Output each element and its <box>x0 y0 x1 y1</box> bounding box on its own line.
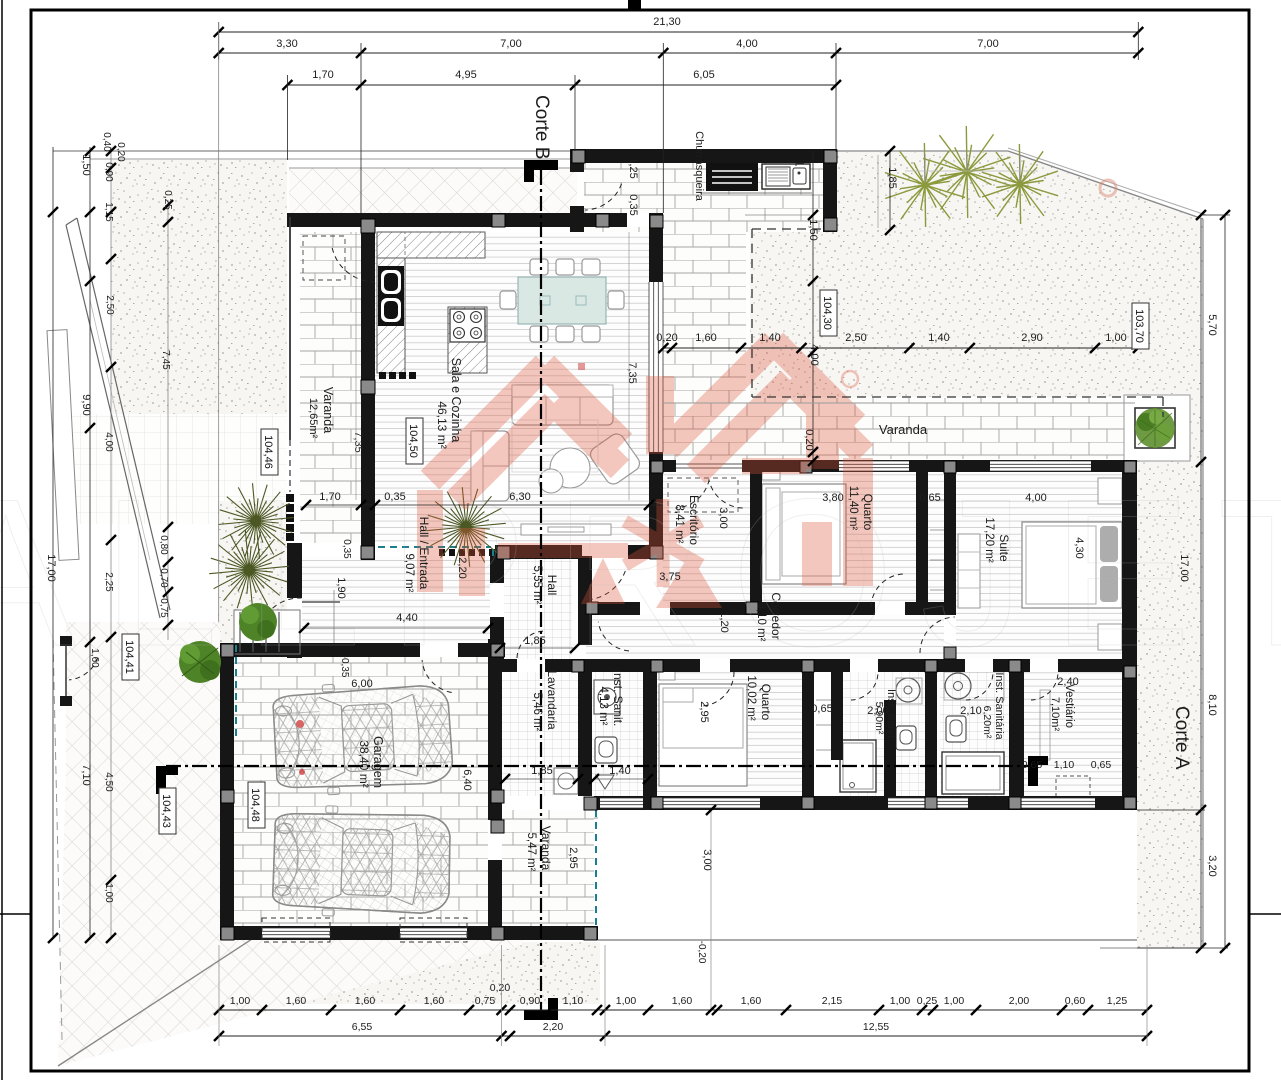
svg-text:1,60: 1,60 <box>89 648 100 668</box>
svg-text:2,00: 2,00 <box>1009 995 1030 1007</box>
svg-text:46,13 m²: 46,13 m² <box>435 401 449 448</box>
svg-text:103,70: 103,70 <box>1133 309 1145 343</box>
svg-text:0,40: 0,40 <box>101 132 112 152</box>
svg-text:1,20: 1,20 <box>718 611 730 632</box>
svg-text:1,70: 1,70 <box>319 491 340 503</box>
svg-text:8,10: 8,10 <box>1206 694 1218 715</box>
svg-text:3,00: 3,00 <box>701 849 713 870</box>
svg-text:0,25: 0,25 <box>162 190 173 210</box>
svg-text:4,95: 4,95 <box>455 69 476 81</box>
svg-text:3,80: 3,80 <box>822 492 843 504</box>
svg-text:7,10m²: 7,10m² <box>1049 697 1061 732</box>
svg-text:Sala e Cozinha: Sala e Cozinha <box>449 358 463 443</box>
svg-text:0,20: 0,20 <box>115 142 126 162</box>
svg-text:2,90: 2,90 <box>1021 332 1042 344</box>
svg-text:6,40: 6,40 <box>461 769 473 790</box>
svg-text:104,50: 104,50 <box>407 424 419 458</box>
svg-text:3,30: 3,30 <box>276 38 297 50</box>
svg-text:7,45: 7,45 <box>160 350 171 370</box>
svg-text:12,55: 12,55 <box>863 1021 889 1033</box>
svg-text:4,00: 4,00 <box>1025 492 1046 504</box>
svg-text:0,20: 0,20 <box>656 332 677 344</box>
svg-text:21,30: 21,30 <box>653 16 681 28</box>
svg-text:2,50: 2,50 <box>104 295 115 315</box>
svg-text:1,50: 1,50 <box>807 219 819 240</box>
svg-text:4,50: 4,50 <box>103 772 114 792</box>
svg-text:0,65: 0,65 <box>919 492 940 504</box>
svg-text:104,30: 104,30 <box>821 296 833 330</box>
svg-text:8,10 m²: 8,10 m² <box>755 603 767 642</box>
svg-text:12,65m²: 12,65m² <box>307 398 319 439</box>
svg-text:Varanda: Varanda <box>539 826 553 871</box>
svg-text:1,00: 1,00 <box>616 995 637 1007</box>
svg-text:Churrasqueira: Churrasqueira <box>693 131 705 202</box>
svg-text:1,90: 1,90 <box>335 577 347 598</box>
svg-text:1,00: 1,00 <box>944 995 965 1007</box>
svg-text:104,43: 104,43 <box>160 794 172 828</box>
svg-text:Inst. Sanitária: Inst. Sanitária <box>993 672 1005 740</box>
svg-text:Quarto: Quarto <box>759 684 773 721</box>
svg-text:7,00: 7,00 <box>977 38 998 50</box>
svg-text:2,95: 2,95 <box>567 847 579 868</box>
svg-text:3,75: 3,75 <box>659 571 680 583</box>
svg-text:0,35: 0,35 <box>384 491 405 503</box>
svg-text:4,00: 4,00 <box>808 344 820 365</box>
svg-text:4,13 m²: 4,13 m² <box>597 687 609 726</box>
svg-text:1,15: 1,15 <box>103 202 114 222</box>
svg-text:104,46: 104,46 <box>262 435 274 469</box>
svg-text:8,41 m²: 8,41 m² <box>673 505 685 544</box>
svg-text:Vestiário: Vestiário <box>1063 684 1075 728</box>
svg-text:104,41: 104,41 <box>123 640 135 674</box>
svg-text:Quarto: Quarto <box>861 494 875 531</box>
svg-text:0,90: 0,90 <box>520 995 541 1007</box>
svg-text:1,85: 1,85 <box>531 765 552 777</box>
svg-text:1,85: 1,85 <box>524 635 545 647</box>
svg-text:0,20: 0,20 <box>490 982 511 994</box>
svg-text:6,30: 6,30 <box>509 491 530 503</box>
svg-text:0,65: 0,65 <box>1091 759 1112 771</box>
svg-text:0,35: 0,35 <box>627 194 639 215</box>
svg-text:0,35: 0,35 <box>341 539 352 559</box>
svg-text:0,90: 0,90 <box>103 162 114 182</box>
svg-text:17,00: 17,00 <box>1178 554 1190 582</box>
svg-text:7,35: 7,35 <box>352 431 364 452</box>
svg-text:1,10: 1,10 <box>1054 759 1075 771</box>
svg-text:17,00: 17,00 <box>45 554 57 582</box>
svg-text:-0,20: -0,20 <box>696 941 707 964</box>
svg-text:7,10: 7,10 <box>80 764 92 785</box>
svg-text:10,02 m²: 10,02 m² <box>745 675 757 721</box>
svg-text:0,80: 0,80 <box>158 535 169 555</box>
svg-text:1,60: 1,60 <box>424 995 445 1007</box>
svg-text:Varanda: Varanda <box>321 387 335 433</box>
svg-text:Corte B: Corte B <box>531 95 552 159</box>
svg-text:Inst. Sanit.: Inst. Sanit. <box>611 670 625 727</box>
svg-text:0,65: 0,65 <box>1022 759 1043 771</box>
svg-text:2,95: 2,95 <box>698 701 710 722</box>
svg-text:9,90: 9,90 <box>80 394 92 415</box>
svg-text:5,55 m²: 5,55 m² <box>531 566 543 605</box>
svg-text:1,60: 1,60 <box>355 995 376 1007</box>
svg-text:1,40: 1,40 <box>928 332 949 344</box>
svg-text:HALLPROJETA: HALLPROJETA <box>0 455 1281 690</box>
svg-text:0,25: 0,25 <box>917 995 938 1007</box>
svg-text:1,40: 1,40 <box>609 765 630 777</box>
svg-text:17,20 m²: 17,20 m² <box>983 517 995 563</box>
svg-text:5,46 m²: 5,46 m² <box>531 693 543 732</box>
svg-text:0,70: 0,70 <box>158 568 169 588</box>
svg-text:3,20: 3,20 <box>1206 855 1218 876</box>
svg-text:4,40: 4,40 <box>396 612 417 624</box>
svg-text:5,47 m²: 5,47 m² <box>525 833 537 872</box>
svg-text:7,35: 7,35 <box>626 362 638 383</box>
svg-text:3,00: 3,00 <box>717 507 729 528</box>
svg-text:1,40: 1,40 <box>759 332 780 344</box>
svg-text:0,60: 0,60 <box>1065 995 1086 1007</box>
svg-text:1,10: 1,10 <box>563 995 584 1007</box>
svg-text:-0,35: -0,35 <box>339 655 350 678</box>
svg-text:2,20: 2,20 <box>543 1021 564 1033</box>
svg-text:4,00: 4,00 <box>103 432 114 452</box>
svg-text:0,75: 0,75 <box>158 598 169 618</box>
svg-text:2,00: 2,00 <box>867 705 888 717</box>
svg-text:6,05: 6,05 <box>693 69 714 81</box>
svg-text:Garagem: Garagem <box>371 736 385 788</box>
svg-text:2,40: 2,40 <box>1057 676 1078 688</box>
svg-text:Corte A: Corte A <box>1171 706 1192 770</box>
svg-text:6,55: 6,55 <box>352 1021 373 1033</box>
svg-text:Hall / Entrada: Hall / Entrada <box>417 517 431 590</box>
svg-text:4,00: 4,00 <box>736 38 757 50</box>
svg-text:Suite: Suite <box>997 534 1011 562</box>
svg-text:1,60: 1,60 <box>741 995 762 1007</box>
svg-text:0,65: 0,65 <box>811 703 832 715</box>
svg-text:5,70: 5,70 <box>1206 314 1218 335</box>
svg-text:11,40 m²: 11,40 m² <box>847 486 859 531</box>
svg-text:2,15: 2,15 <box>822 995 843 1007</box>
svg-text:2,50: 2,50 <box>845 332 866 344</box>
svg-text:1,25: 1,25 <box>1107 995 1128 1007</box>
svg-text:1,00: 1,00 <box>103 883 114 903</box>
svg-text:2,25: 2,25 <box>103 572 114 592</box>
svg-text:1,25: 1,25 <box>627 157 639 178</box>
svg-text:Varanda: Varanda <box>879 422 928 437</box>
svg-text:1,00: 1,00 <box>230 995 251 1007</box>
svg-text:9,07 m²: 9,07 m² <box>403 554 415 593</box>
svg-text:1,60: 1,60 <box>672 995 693 1007</box>
svg-text:104,48: 104,48 <box>249 788 261 822</box>
svg-text:Corredor: Corredor <box>769 592 783 639</box>
svg-text:1,00: 1,00 <box>1105 332 1126 344</box>
svg-text:0,20: 0,20 <box>803 429 815 450</box>
svg-text:1,00: 1,00 <box>890 995 911 1007</box>
svg-text:Escritório: Escritório <box>687 495 701 545</box>
svg-text:1,60: 1,60 <box>286 995 307 1007</box>
svg-text:6,20m²: 6,20m² <box>981 706 993 739</box>
svg-text:1,60: 1,60 <box>695 332 716 344</box>
svg-text:7,00: 7,00 <box>500 38 521 50</box>
svg-text:2,20: 2,20 <box>456 557 468 578</box>
svg-text:2,10: 2,10 <box>960 705 981 717</box>
svg-text:1,85: 1,85 <box>886 167 898 188</box>
svg-text:38,40 m²: 38,40 m² <box>357 740 371 787</box>
svg-text:0,75: 0,75 <box>475 995 496 1007</box>
svg-text:1,70: 1,70 <box>312 69 333 81</box>
svg-text:Hall: Hall <box>545 575 559 596</box>
svg-text:6,00: 6,00 <box>351 678 372 690</box>
svg-text:1,50: 1,50 <box>80 154 92 175</box>
svg-text:Lavandaria: Lavandaria <box>545 670 559 730</box>
svg-text:4,30: 4,30 <box>1073 537 1085 558</box>
